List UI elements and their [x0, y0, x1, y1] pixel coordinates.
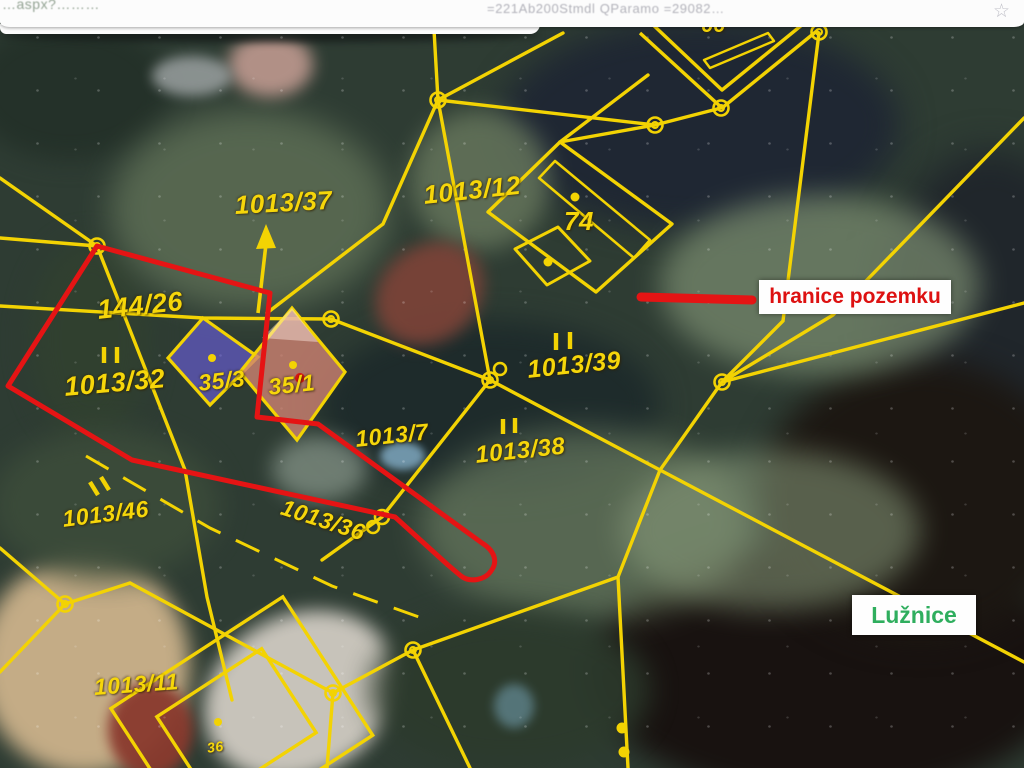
- legend-red-line-swatch: [641, 297, 752, 300]
- building-74-outline: [488, 142, 672, 292]
- dashed-parcel-line: [86, 456, 433, 622]
- red-survey-dot: [295, 373, 305, 383]
- boundary-legend-box: hranice pozemku: [759, 280, 951, 314]
- cadastral-overlay: [0, 0, 1024, 768]
- survey-point-dots: [208, 193, 630, 758]
- browser-bar: …aspx?……… =221Ab200Stmdl QParamo =29082……: [0, 0, 1024, 27]
- url-fragment-left[interactable]: …aspx?………: [2, 0, 100, 12]
- parcel-66-outline: [640, 20, 818, 108]
- parcel-boundary-lines: [0, 30, 1024, 768]
- bookmark-star-icon[interactable]: ☆: [993, 0, 1010, 23]
- river-name-label: Lužnice: [871, 602, 957, 629]
- boundary-legend-label: hranice pozemku: [769, 285, 941, 309]
- url-fragment-right[interactable]: =221Ab200Stmdl QParamo =29082…: [487, 1, 725, 16]
- building-footprint-outlines: [111, 597, 373, 768]
- map-canvas[interactable]: 1013/37 1013/12 74 144/26 1013/32 35/3 3…: [0, 0, 1024, 768]
- property-boundary-red: [8, 246, 495, 580]
- label-arrow-1013-37: [256, 224, 276, 313]
- river-name-box: Lužnice: [852, 595, 976, 635]
